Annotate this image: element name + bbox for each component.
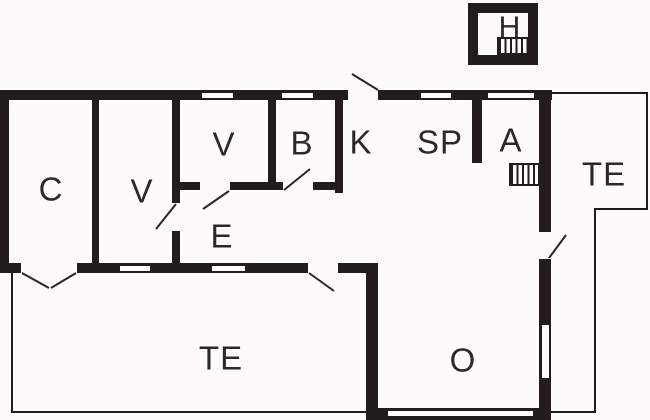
door-gap-e-terrace bbox=[308, 262, 338, 274]
room-label-h: H bbox=[499, 13, 522, 43]
room-label-sp: SP bbox=[417, 126, 463, 159]
window-bottom-o bbox=[388, 411, 533, 416]
terrace-right-outline-right bbox=[646, 92, 648, 210]
terrace-right-outline-step bbox=[594, 208, 648, 210]
window-bottom-e bbox=[212, 266, 245, 271]
terrace-bottom-outline-bottom bbox=[11, 411, 368, 413]
wall-b-k bbox=[335, 100, 343, 193]
terrace-right-outline-top bbox=[551, 92, 648, 94]
room-label-e: E bbox=[210, 220, 233, 253]
door-gap-o-east bbox=[538, 232, 552, 259]
door-gap-v-room bbox=[171, 203, 181, 231]
window-top-a bbox=[488, 93, 534, 98]
window-top-sp bbox=[421, 93, 451, 98]
wall-sp-a bbox=[472, 100, 482, 163]
room-label-te-bottom: TE bbox=[199, 342, 243, 375]
door-gap-k-entrance bbox=[348, 89, 378, 101]
terrace-bottom-outline-left bbox=[11, 272, 13, 413]
outer-wall-left bbox=[0, 90, 9, 273]
door-gap-c-terrace bbox=[21, 262, 77, 274]
outer-wall-top bbox=[0, 90, 552, 100]
wall-vsmall-b bbox=[268, 100, 276, 182]
room-label-b: B bbox=[290, 127, 313, 160]
door-swing-c-terrace-right bbox=[51, 273, 76, 288]
terrace-right-outline-inner bbox=[594, 208, 596, 413]
room-label-te-right: TE bbox=[582, 158, 626, 191]
door-swing-c-terrace-left bbox=[22, 273, 49, 288]
room-label-v-large: V bbox=[130, 175, 153, 208]
room-label-v-small: V bbox=[212, 128, 235, 161]
door-swing-e-terrace bbox=[309, 273, 334, 291]
wall-v-e bbox=[172, 100, 180, 263]
room-label-a: A bbox=[499, 124, 522, 157]
window-bottom-v bbox=[120, 266, 150, 271]
entrance-stairs-a bbox=[509, 163, 540, 186]
o-room-wall-left bbox=[366, 263, 378, 420]
room-label-o: O bbox=[450, 344, 477, 377]
door-swing-v-small bbox=[203, 191, 229, 209]
door-swing-k-entrance bbox=[352, 74, 378, 90]
wall-c-v bbox=[92, 100, 99, 263]
door-gap-b-room bbox=[283, 181, 313, 191]
room-label-c: C bbox=[39, 173, 64, 206]
window-top-b bbox=[282, 93, 313, 98]
terrace-right-outline-bottom bbox=[551, 411, 596, 413]
window-right-o bbox=[542, 325, 549, 378]
floor-plan: C V V B K SP A TE E TE O H bbox=[0, 0, 650, 420]
window-top-vsmall bbox=[202, 93, 233, 98]
room-label-k: K bbox=[349, 126, 372, 159]
door-gap-v-small bbox=[200, 181, 230, 191]
